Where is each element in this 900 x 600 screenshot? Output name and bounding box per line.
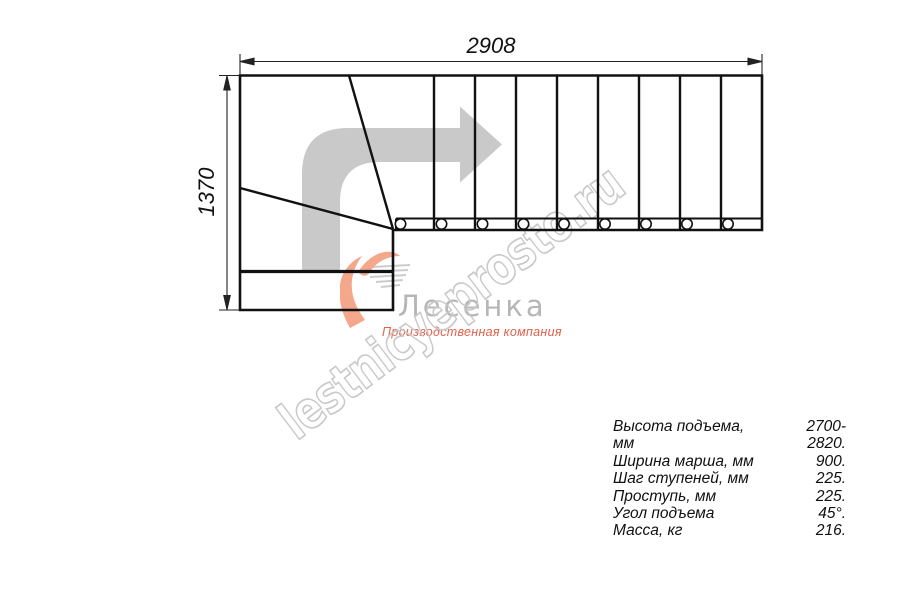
dim-arrow-left (240, 58, 254, 65)
spec-label: Высота подъема, мм (613, 418, 768, 453)
spec-value: 225. (816, 488, 846, 505)
spec-row: Ширина марша, мм 900. (613, 453, 846, 470)
stair-outline (240, 76, 762, 311)
spec-label: Масса, кг (613, 522, 682, 539)
spec-value: 225. (816, 470, 846, 487)
spec-row: Высота подъема, мм 2700-2820. (613, 418, 846, 453)
spec-label: Ширина марша, мм (613, 453, 754, 470)
spec-row: Шаг ступеней, мм 225. (613, 470, 846, 487)
stair-plan-page: Лесенка Производственная компания lestni… (0, 0, 900, 600)
specs-table: Высота подъема, мм 2700-2820. Ширина мар… (613, 418, 846, 540)
spec-value: 2700-2820. (768, 418, 846, 453)
winder-treads (240, 76, 393, 272)
spec-label: Шаг ступеней, мм (613, 470, 749, 487)
flight-treads (434, 76, 721, 231)
spec-value: 900. (816, 453, 846, 470)
spec-row: Угол подъема 45°. (613, 505, 846, 522)
stringer-strip (396, 219, 762, 231)
dim-arrow-top (224, 76, 230, 90)
spec-value: 216. (816, 522, 846, 539)
dim-arrow-bottom (224, 296, 230, 310)
spec-value: 45°. (818, 505, 846, 522)
spec-row: Проступь, мм 225. (613, 488, 846, 505)
tread-bolts (395, 219, 733, 229)
spec-row: Масса, кг 216. (613, 522, 846, 539)
spec-label: Проступь, мм (613, 488, 716, 505)
dim-arrow-right (748, 58, 762, 65)
spec-label: Угол подъема (613, 505, 714, 522)
